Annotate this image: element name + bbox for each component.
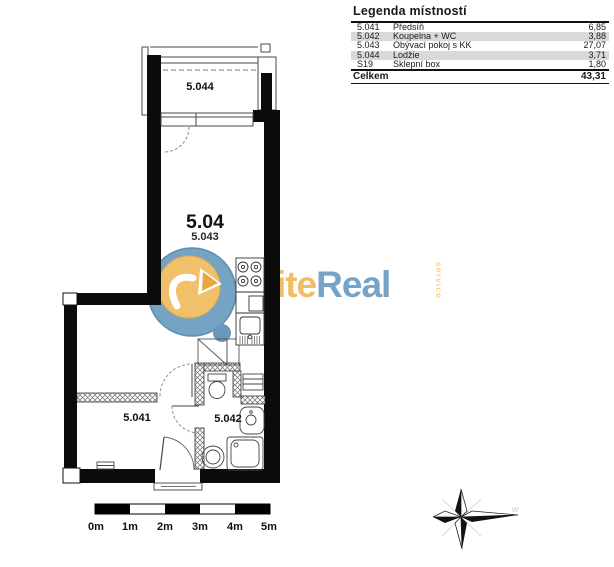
- washing-machine-icon: [202, 446, 224, 468]
- toilet-icon: [208, 374, 226, 399]
- room-label-balcony: 5.044: [186, 81, 214, 93]
- balcony-window: [161, 113, 253, 152]
- balcony-outline: [142, 44, 276, 115]
- legend-panel: Legenda místností 5.041 Předsíň 6,85 5.0…: [351, 3, 609, 84]
- installation-shaft: [198, 339, 239, 365]
- towel-radiator-icon: [243, 374, 263, 390]
- scale-bar-labels: 0m 1m 2m 3m 4m 5m: [88, 521, 277, 533]
- kitchen-unit: [236, 258, 264, 345]
- radiator-icon: [97, 462, 114, 469]
- legend-row: 5.042 Koupelna + WC 3,88: [351, 32, 609, 41]
- scale-label-4: 4m: [227, 521, 243, 533]
- room-label-hall: 5.041: [123, 412, 151, 424]
- floorplan-page: EliteReal service: [0, 0, 614, 567]
- scale-label-5: 5m: [261, 521, 277, 533]
- room-label-bath: 5.042: [214, 413, 242, 425]
- scale-label-1: 1m: [122, 521, 138, 533]
- washbasin-icon: [240, 407, 264, 434]
- legend-row: S19 Sklepní box 1,80: [351, 60, 609, 69]
- scale-label-2: 2m: [157, 521, 173, 533]
- room-code: S19: [351, 60, 393, 69]
- scale-bar: 0m 1m 2m 3m 4m 5m: [88, 504, 277, 533]
- room-area: 1,80: [554, 60, 609, 69]
- legend-total-row: Celkem 43,31: [351, 69, 609, 84]
- unit-label: 5.04: [186, 211, 224, 233]
- compass-rose-icon: w: [433, 489, 519, 549]
- shower-tray-icon: [227, 437, 263, 470]
- legend-row: 5.044 Lodžie 3,71: [351, 51, 609, 60]
- room-name: Sklepní box: [393, 60, 554, 69]
- legend-row: 5.043 Obývací pokoj s KK 27,07: [351, 41, 609, 50]
- legend-rows: 5.041 Předsíň 6,85 5.042 Koupelna + WC 3…: [351, 21, 609, 69]
- scale-label-0: 0m: [88, 521, 104, 533]
- logo-service-text: service: [434, 262, 444, 299]
- living-room-door: [160, 364, 192, 397]
- legend-total-value: 43,31: [546, 71, 609, 83]
- scale-label-3: 3m: [192, 521, 208, 533]
- compass-faint-mark: w: [512, 504, 519, 514]
- balcony-door-swing: [164, 127, 189, 152]
- legend-total-label: Celkem: [351, 71, 546, 83]
- room-label-living: 5.043: [191, 231, 219, 243]
- elitereal-logo-emblem: [148, 248, 236, 342]
- floorplan-drawing: EliteReal service: [0, 0, 614, 567]
- logo-real-text: Real: [316, 264, 390, 305]
- legend-row: 5.041 Předsíň 6,85: [351, 23, 609, 32]
- legend-title: Legenda místností: [351, 3, 609, 21]
- elitereal-logo: EliteReal service: [148, 248, 444, 342]
